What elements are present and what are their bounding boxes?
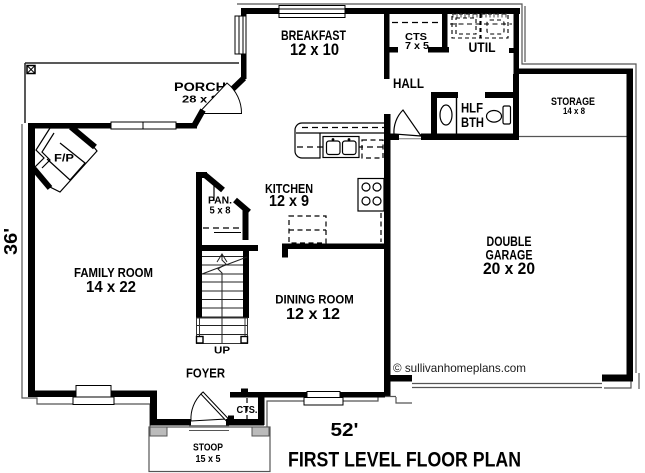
svg-text:DINING ROOM: DINING ROOM: [275, 293, 354, 307]
svg-text:15 x 5: 15 x 5: [196, 454, 221, 465]
svg-text:F/P: F/P: [54, 153, 74, 165]
svg-text:14 x 22: 14 x 22: [86, 279, 136, 296]
svg-text:STOOP: STOOP: [193, 442, 223, 454]
svg-text:© sullivanhomeplans.com: © sullivanhomeplans.com: [393, 361, 526, 375]
svg-text:FAMILY ROOM: FAMILY ROOM: [74, 265, 153, 280]
svg-text:HALL: HALL: [393, 76, 424, 91]
svg-text:FOYER: FOYER: [186, 366, 226, 381]
svg-text:14 x 8: 14 x 8: [563, 106, 585, 117]
svg-text:FIRST LEVEL FLOOR PLAN: FIRST LEVEL FLOOR PLAN: [288, 448, 521, 472]
svg-text:UP: UP: [214, 345, 230, 357]
svg-text:36': 36': [1, 228, 21, 255]
svg-text:UTIL: UTIL: [469, 40, 496, 55]
svg-text:5 x 8: 5 x 8: [210, 206, 231, 217]
svg-text:20 x 20: 20 x 20: [483, 260, 535, 278]
svg-text:12 x 12: 12 x 12: [286, 306, 340, 323]
svg-text:HLF: HLF: [461, 101, 483, 116]
svg-text:12 x 9: 12 x 9: [269, 193, 309, 210]
svg-text:7 x 5: 7 x 5: [405, 41, 429, 52]
svg-text:12 x 10: 12 x 10: [290, 40, 339, 59]
svg-text:BTH: BTH: [461, 115, 484, 130]
svg-text:52': 52': [331, 420, 359, 440]
svg-text:CTS.: CTS.: [237, 405, 258, 416]
